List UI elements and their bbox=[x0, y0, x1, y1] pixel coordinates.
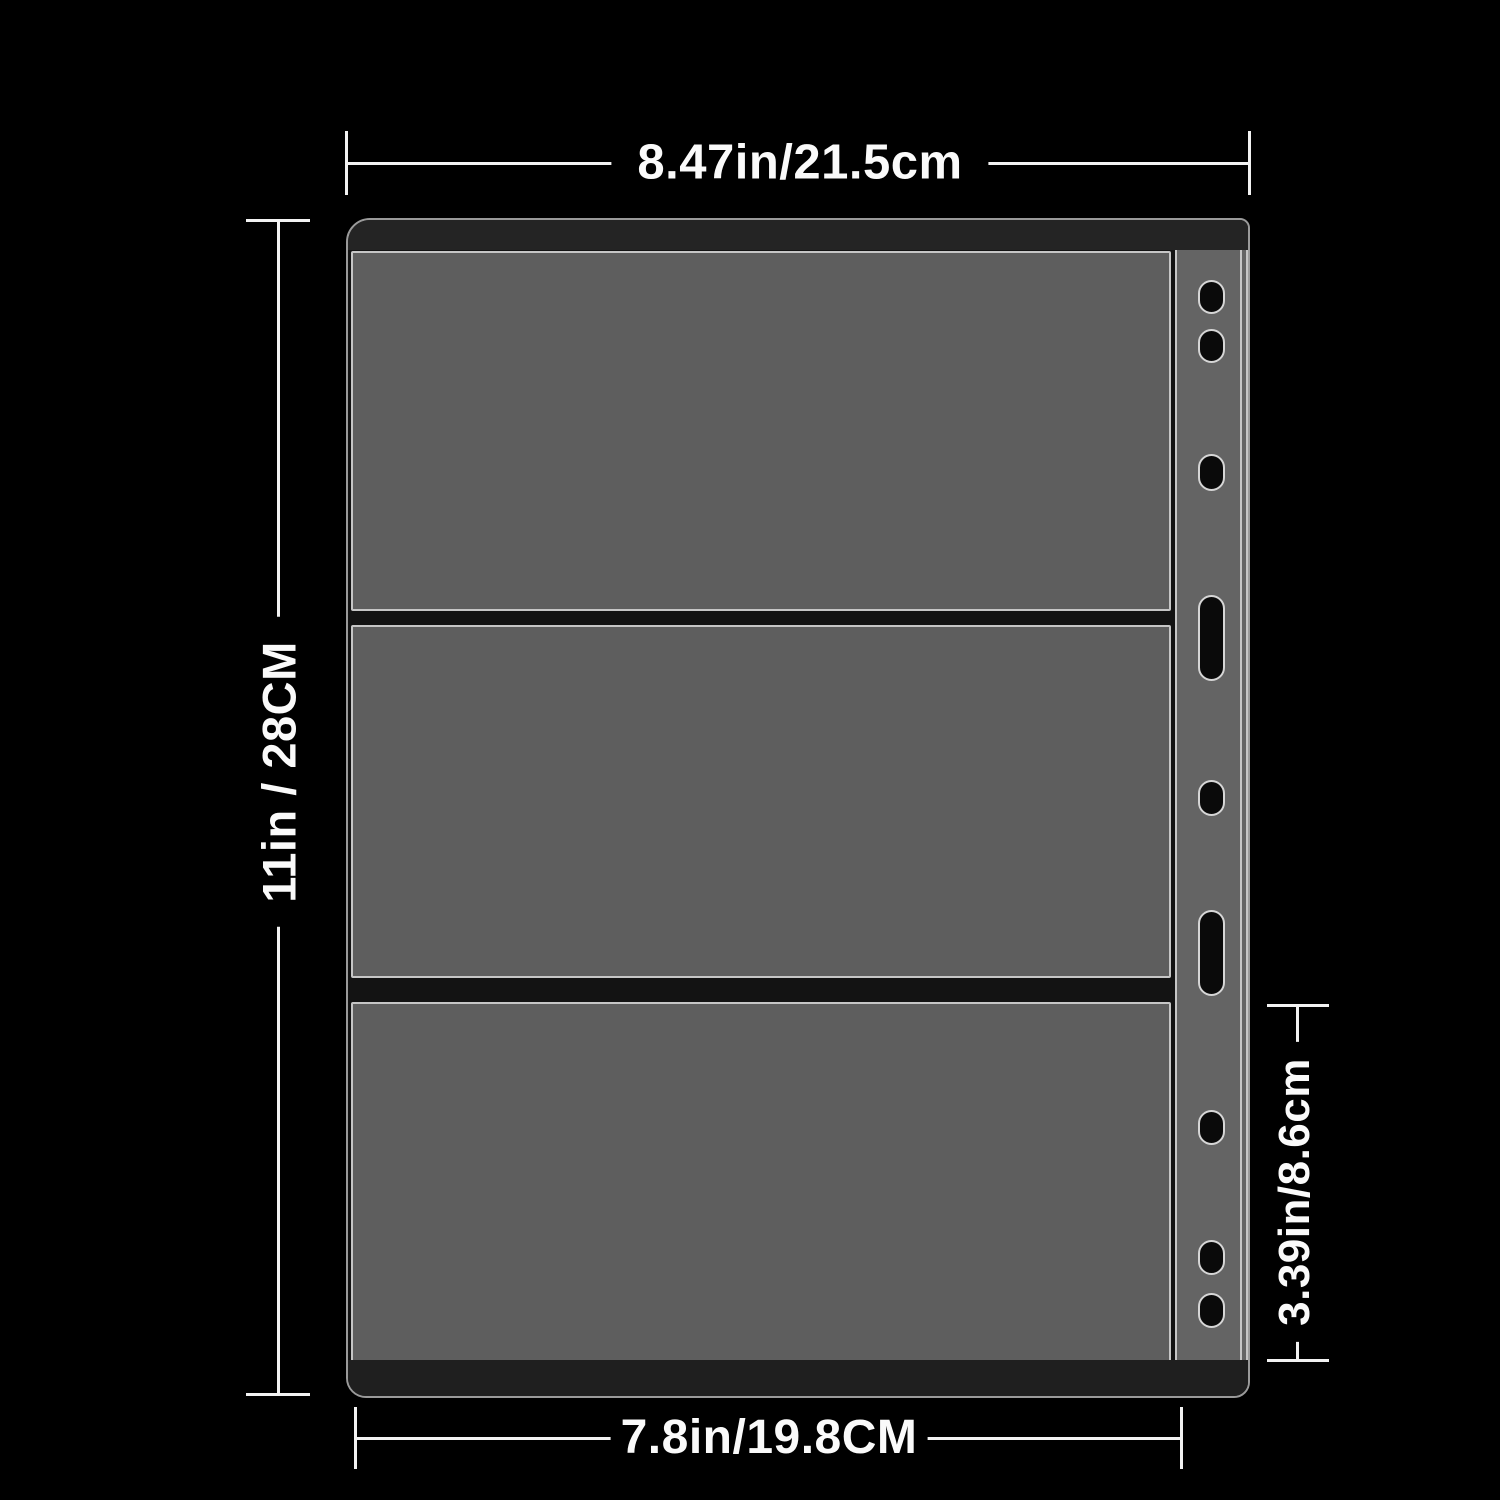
pocket-slot-1 bbox=[351, 251, 1171, 611]
dimension-tick bbox=[246, 1393, 310, 1396]
page-top-binding-bar bbox=[348, 220, 1248, 250]
pocket-width-label: 7.8in/19.8CM bbox=[611, 1409, 928, 1467]
binder-hole-8 bbox=[1198, 1240, 1225, 1275]
pocket-height-label: 3.39in/8.6cm bbox=[1268, 1042, 1322, 1342]
binder-hole-7 bbox=[1198, 1110, 1225, 1145]
pocket-slot-3 bbox=[351, 1002, 1171, 1362]
binder-slot-hole-6 bbox=[1198, 910, 1225, 996]
binder-hole-9 bbox=[1198, 1293, 1225, 1328]
total-height-label: 11in / 28CM bbox=[250, 617, 307, 927]
binder-slot-hole-4 bbox=[1198, 595, 1225, 681]
dimension-tick bbox=[354, 1407, 357, 1469]
binder-hole-2 bbox=[1198, 329, 1225, 363]
binder-hole-1 bbox=[1198, 280, 1225, 314]
binder-page bbox=[346, 218, 1250, 1398]
product-dimension-diagram: 8.47in/21.5cm 11in / 28CM 3.39in/8.6cm 7… bbox=[0, 0, 1500, 1500]
dimension-tick bbox=[1267, 1004, 1329, 1007]
dimension-tick bbox=[246, 219, 310, 222]
dimension-tick bbox=[345, 131, 348, 195]
binder-hole-3 bbox=[1198, 454, 1225, 491]
page-bottom-binding-bar bbox=[348, 1360, 1248, 1396]
binder-edge-strip bbox=[1175, 250, 1248, 1364]
dimension-tick bbox=[1248, 131, 1251, 195]
dimension-tick bbox=[1180, 1407, 1183, 1469]
dimension-tick bbox=[1267, 1359, 1329, 1362]
pocket-slot-2 bbox=[351, 625, 1171, 978]
total-width-label: 8.47in/21.5cm bbox=[611, 133, 988, 192]
binder-hole-5 bbox=[1198, 780, 1225, 816]
